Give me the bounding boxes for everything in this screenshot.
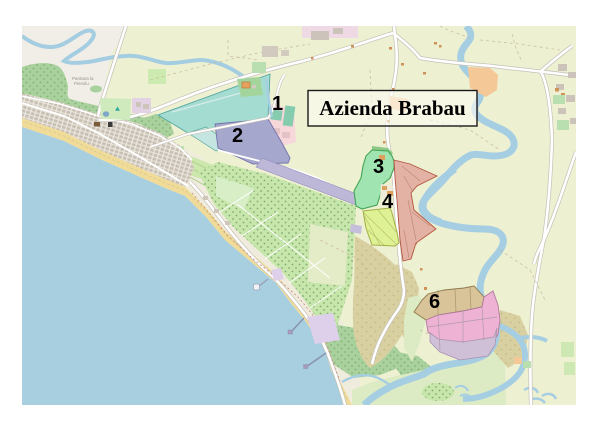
svg-text:Piesolu: Piesolu — [74, 81, 89, 86]
svg-text:2: 2 — [232, 125, 243, 147]
svg-text:3: 3 — [373, 156, 384, 178]
svg-text:1: 1 — [272, 93, 283, 115]
svg-text:Azienda Brabau: Azienda Brabau — [319, 96, 466, 120]
svg-text:4: 4 — [382, 191, 394, 213]
svg-text:6: 6 — [429, 291, 440, 313]
